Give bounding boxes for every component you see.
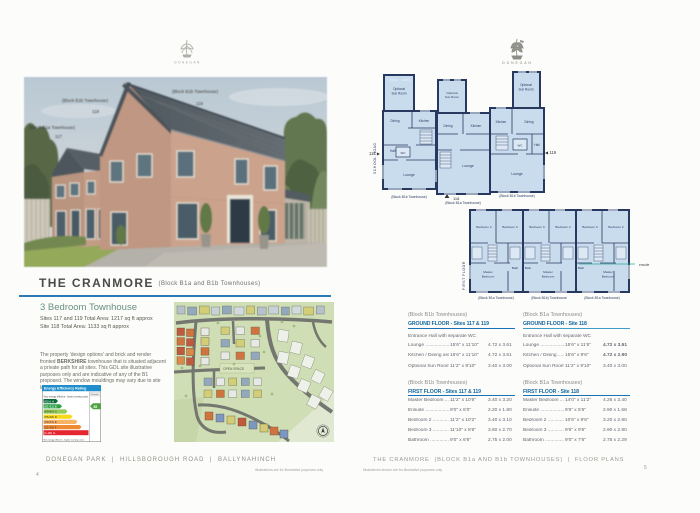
svg-text:Bedroom 2: Bedroom 2 [555,225,570,229]
svg-text:Bath: Bath [525,266,532,270]
svg-text:ensuite: ensuite [639,263,650,267]
svg-text:SCHOOL ROAD: SCHOOL ROAD [373,142,377,174]
svg-text:119: 119 [196,101,204,106]
svg-text:DONEGAN: DONEGAN [174,61,201,65]
svg-text:(92+) A: (92+) A [44,399,54,403]
svg-text:Bedroom 2: Bedroom 2 [608,225,623,229]
svg-text:Bedroom 3: Bedroom 3 [582,225,597,229]
svg-text:Dining: Dining [443,124,452,128]
svg-text:Kitchen: Kitchen [419,119,430,123]
svg-text:(55-68) D: (55-68) D [44,415,58,419]
svg-text:(1-20) G: (1-20) G [44,431,56,435]
svg-text:Sun Room: Sun Room [518,88,533,92]
svg-text:Lounge: Lounge [511,172,522,176]
svg-text:Bath: Bath [512,266,519,270]
svg-text:WC: WC [518,144,524,148]
svg-text:Bath: Bath [578,266,585,270]
svg-text:Hall: Hall [534,143,540,147]
svg-text:Hall: Hall [390,149,396,153]
svg-text:85: 85 [94,405,98,409]
svg-text:117: 117 [55,134,63,139]
svg-text:Lounge: Lounge [462,164,473,168]
svg-text:Very energy efficient - lower: Very energy efficient - lower running co… [44,396,89,399]
svg-text:(39-54) E: (39-54) E [44,420,57,424]
svg-text:(Block B1a Townhouse): (Block B1a Townhouse) [478,296,514,300]
svg-text:118: 118 [92,109,100,114]
svg-text:(Block B1a Townhouse): (Block B1a Townhouse) [584,296,620,300]
svg-text:Current: Current [91,393,99,396]
svg-text:Bedroom 2: Bedroom 2 [476,225,491,229]
svg-text:Master: Master [603,270,612,274]
svg-text:Optional: Optional [393,87,405,91]
svg-text:Energy Efficiency Rating: Energy Efficiency Rating [44,387,86,391]
svg-text:Bedroom: Bedroom [602,275,615,279]
svg-text:(Block B1b) Townhouse: (Block B1b) Townhouse [531,296,567,300]
svg-text:Not energy efficient - higher: Not energy efficient - higher running co… [44,439,85,442]
svg-text:Optional: Optional [520,83,532,87]
svg-text:(Block B1b Townhouse): (Block B1b Townhouse) [172,89,219,94]
svg-text:Bedroom: Bedroom [482,275,495,279]
svg-text:DONEGAN: DONEGAN [502,61,532,65]
svg-text:WC: WC [401,151,407,155]
svg-text:◀ 119: ◀ 119 [545,150,557,155]
svg-text:Master: Master [543,270,552,274]
svg-text:Sun Room: Sun Room [391,92,406,96]
svg-text:Dining: Dining [390,119,399,123]
svg-text:OPEN SPACE: OPEN SPACE [223,367,245,371]
svg-text:(Block B1b Townhouse): (Block B1b Townhouse) [391,195,427,199]
svg-text:Bedroom 3: Bedroom 3 [529,225,544,229]
svg-text:Dining: Dining [524,120,533,124]
svg-text:Sun Room: Sun Room [445,95,460,99]
svg-text:(Block B1a Townhouse): (Block B1a Townhouse) [29,125,76,130]
svg-text:(Block B1b Townhouse): (Block B1b Townhouse) [499,194,535,198]
svg-text:Lounge: Lounge [403,173,414,177]
svg-text:Master: Master [483,270,492,274]
svg-text:(81-91) B: (81-91) B [44,405,57,409]
svg-text:(21-38) F: (21-38) F [44,425,57,429]
svg-text:Kitchen: Kitchen [496,120,507,124]
svg-text:Kitchen: Kitchen [471,124,482,128]
svg-text:Bedroom: Bedroom [542,275,555,279]
svg-text:(69-80) C: (69-80) C [44,410,58,414]
svg-text:(Block B1b Townhouse): (Block B1b Townhouse) [62,98,109,103]
svg-text:Bedroom 3: Bedroom 3 [502,225,517,229]
svg-text:FIRST FLOOR: FIRST FLOOR [462,261,466,290]
